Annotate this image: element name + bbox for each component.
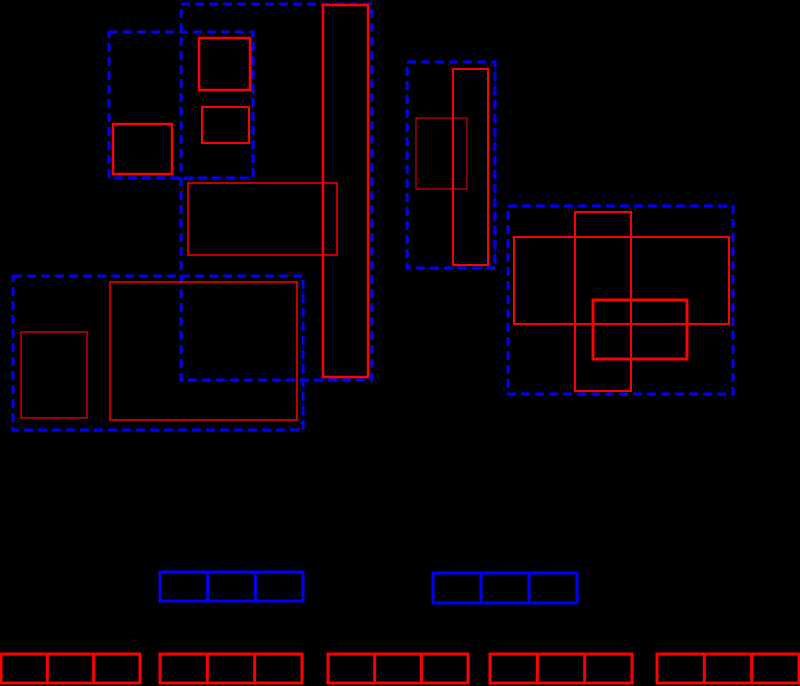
leaf-node-1	[1, 654, 140, 683]
object-rect-5	[188, 183, 337, 255]
object-rect-12	[593, 300, 687, 359]
object-layer	[21, 5, 729, 420]
internal-node-1-frame	[160, 572, 303, 601]
object-rect-1	[199, 38, 250, 90]
leaf-node-5-frame	[657, 654, 799, 683]
object-rect-8	[453, 69, 488, 265]
object-rect-7	[110, 282, 297, 420]
leaf-node-1-frame	[1, 654, 140, 683]
node-layer	[1, 572, 799, 683]
object-rect-2	[202, 107, 249, 143]
leaf-node-3-frame	[328, 654, 468, 683]
object-rect-3	[113, 124, 172, 174]
group-mbr-3	[13, 276, 303, 430]
object-rect-4	[323, 5, 368, 377]
leaf-node-3	[328, 654, 468, 683]
leaf-node-2-frame	[160, 654, 302, 683]
internal-node-2-frame	[433, 573, 577, 603]
object-rect-10	[514, 237, 729, 324]
group-mbr-2	[181, 4, 372, 380]
leaf-node-4	[490, 654, 632, 683]
group-mbr-layer	[13, 4, 733, 430]
rtree-diagram	[0, 0, 800, 686]
internal-node-2	[433, 573, 577, 603]
diagram-canvas	[0, 0, 800, 686]
leaf-node-2	[160, 654, 302, 683]
leaf-node-5	[657, 654, 799, 683]
group-mbr-4	[407, 62, 495, 268]
object-rect-6	[21, 332, 87, 418]
object-rect-9	[416, 118, 467, 189]
internal-node-1	[160, 572, 303, 601]
leaf-node-4-frame	[490, 654, 632, 683]
